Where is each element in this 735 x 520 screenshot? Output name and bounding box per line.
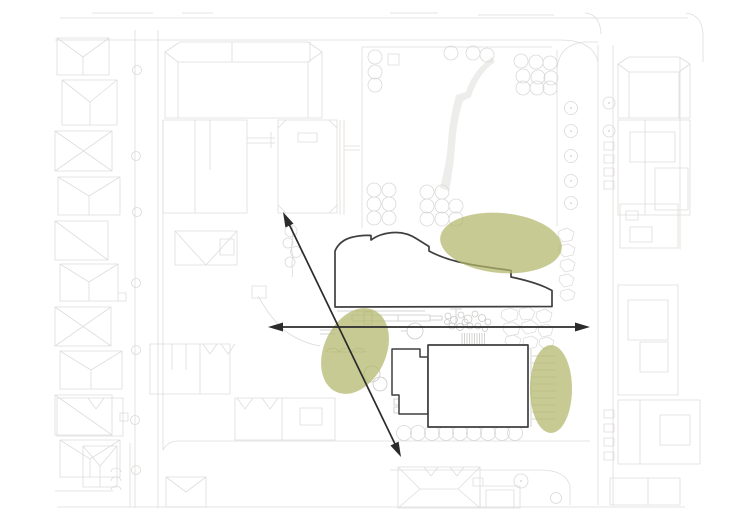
proposed-building-south (428, 345, 528, 427)
park (362, 42, 615, 228)
shrub-scribble (445, 311, 492, 332)
arrowhead-east (575, 323, 590, 332)
vegetation-zone-east (530, 345, 572, 433)
street-west (131, 30, 164, 508)
blocks-north (163, 42, 360, 215)
axis-arrow-horizontal (268, 323, 590, 332)
blocks-east (598, 45, 700, 505)
arrowhead-west (268, 323, 283, 332)
street-north (55, 13, 703, 62)
site-plan-canvas (0, 0, 735, 520)
arrowhead-southeast (390, 442, 401, 457)
vegetation-zone-southwest (308, 297, 402, 405)
park-path (440, 57, 495, 191)
proposed-building-south-annex (392, 349, 428, 414)
site-plan-diagram (0, 0, 735, 520)
houses-west (55, 38, 128, 477)
park-trees (367, 46, 615, 226)
